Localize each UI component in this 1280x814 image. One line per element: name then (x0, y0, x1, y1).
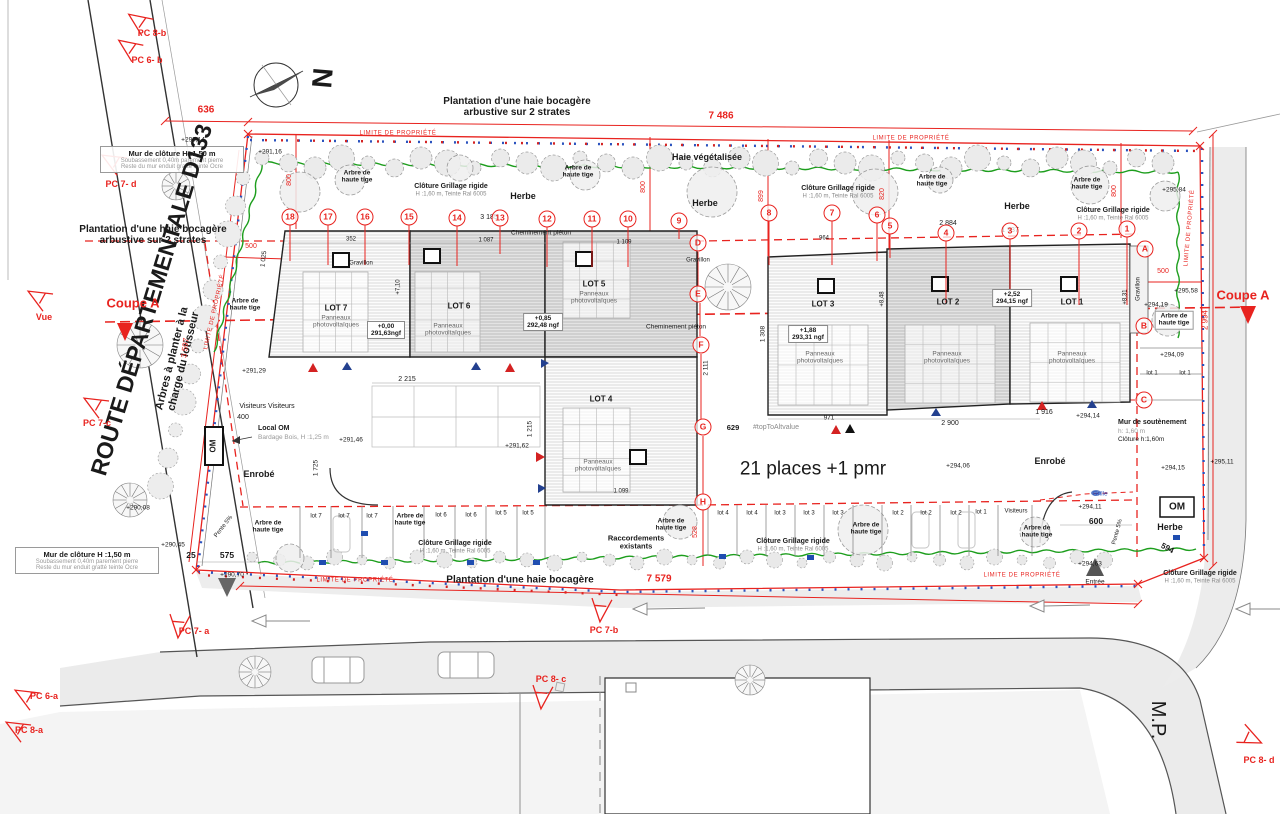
badge-2: 2 (1071, 223, 1088, 240)
badge-C: C (1136, 392, 1153, 409)
pc-8a: PC 8-a (15, 725, 43, 735)
plan-label: Herbe (1004, 201, 1030, 211)
plan-label: Enrobé (1034, 456, 1065, 466)
plan-label: H :1,60 m, Teinte Ral 6005 (803, 194, 874, 201)
plan-label: 600 (1089, 517, 1103, 527)
plan-label: Gravillon (1136, 277, 1143, 301)
section-a-left: Coupe A (107, 297, 160, 312)
plan-label: LIMITE DE PROPRIÉTÉ (872, 136, 949, 143)
plan-label: Arbre de haute tige (1072, 177, 1103, 192)
plan-label: Arbre de haute tige (656, 518, 687, 533)
badge-8: 8 (761, 205, 778, 222)
plan-label: Gravillon (349, 261, 373, 268)
plan-label: Grille (1092, 490, 1107, 497)
badge-18: 18 (282, 209, 299, 226)
pc-6b: PC 6- b (131, 55, 162, 65)
lot-6-label: LOT 6 (448, 302, 471, 311)
om-box-west: OM (210, 440, 219, 453)
plan-label: lot 1 (1179, 371, 1190, 378)
plan-label: Arbre de haute tige (253, 520, 284, 535)
badge-B: B (1136, 318, 1153, 335)
plan-label: lot 3 (803, 511, 814, 518)
plan-label: Arbre de haute tige (1022, 525, 1053, 540)
badge-14: 14 (449, 210, 466, 227)
badge-H: H (695, 494, 712, 511)
plantation-note-top: Plantation d'une haie bocagère arbustive… (443, 96, 590, 118)
plan-label: 1 109 (616, 240, 631, 247)
lot-2-label: LOT 2 (937, 298, 960, 307)
plan-label: +7,10 (396, 279, 403, 294)
plan-label: LIMITE DE PROPRIÉTÉ (359, 131, 436, 138)
plan-label: lot 5 (495, 511, 506, 518)
plantation-note-south: Plantation d'une haie bocagère (446, 574, 593, 585)
retaining-wall-note: Mur de soutènement h: 1,60 m Clôture h:1… (1118, 419, 1186, 444)
parking-count: 21 places +1 pmr (740, 458, 886, 479)
badge-15: 15 (401, 209, 418, 226)
plan-label: Gravillon (686, 258, 710, 265)
lot-1-label: LOT 1 (1061, 298, 1084, 307)
plan-label: Arbre de haute tige (851, 522, 882, 537)
lot-5-label: LOT 5 (583, 280, 606, 289)
plan-label: +294,11 (1078, 503, 1101, 510)
plan-label: +294,15 (1161, 464, 1185, 471)
badge-E: E (690, 286, 707, 303)
badge-F: F (693, 337, 710, 354)
badge-13: 13 (492, 210, 509, 227)
badge-17: 17 (320, 209, 337, 226)
plan-label: 971 (824, 414, 835, 421)
pc-8c: PC 8- c (536, 674, 567, 684)
plan-label: 7 486 (708, 110, 733, 121)
plan-label: 1 916 (1035, 409, 1053, 417)
badge-A: A (1137, 241, 1154, 258)
plan-label: +294,19 (1144, 301, 1168, 308)
plan-label: H :1,60 m, Teinte Ral 6005 (758, 547, 829, 554)
plan-label: LIMITE DE PROPRIÉTÉ (983, 573, 1060, 580)
plan-label: lot 1 (975, 510, 986, 517)
om-box-east: OM (1169, 501, 1185, 512)
plan-label: 800 (1111, 185, 1119, 197)
plan-label: 7 579 (646, 573, 671, 584)
plan-label: +294,09 (1160, 351, 1184, 358)
level-box-lot3: +1,88293,31 ngf (788, 325, 828, 343)
plan-label: lot 3 (774, 511, 785, 518)
plan-label: Arbre de haute tige (1155, 311, 1194, 330)
entrance-label: Entrée (1085, 578, 1104, 585)
badge-4: 4 (938, 225, 955, 242)
plan-label: Cheminement piéton (646, 323, 706, 330)
plan-label: Clôture Grillage rigide (801, 185, 875, 193)
plan-label: H :1,60 m, Teinte Ral 6005 (1165, 579, 1236, 586)
plan-label: 528 (692, 526, 700, 538)
plan-label: lot 6 (435, 513, 446, 520)
plan-label: LIMITE DE PROPRIÉTÉ (316, 578, 393, 585)
plan-label: lot 1 (1146, 371, 1157, 378)
plan-label: 1 308 (759, 326, 766, 342)
level-box-lot56: +0,85292,48 ngf (523, 313, 563, 331)
plan-label: 1 087 (478, 238, 493, 245)
badge-G: G (695, 419, 712, 436)
plan-label: 1 099 (613, 489, 628, 496)
plan-label: +294,06 (946, 462, 970, 469)
plan-label: Cheminement piéton (511, 229, 571, 236)
plan-label: 820 (879, 188, 887, 200)
pc-7a: PC 7- a (179, 626, 210, 636)
plan-label: +290,14 (181, 136, 205, 143)
lot-3-label: LOT 3 (812, 300, 835, 309)
plan-label: lot 2 (950, 511, 961, 518)
mp-road-label: M.P. (1147, 701, 1169, 740)
plan-label: lot 7 (366, 514, 377, 521)
plan-label: 964 (819, 236, 829, 243)
badge-16: 16 (357, 209, 374, 226)
plan-label: lot 3 (832, 511, 843, 518)
pc-7d: PC 7- d (105, 179, 136, 189)
plan-label: 575 (220, 551, 234, 561)
plan-label: 500 (1157, 268, 1169, 276)
plan-label: +295,58 (1174, 287, 1198, 294)
local-om-note: Local OM Bardage Bois, H :1,25 m (258, 425, 329, 442)
plan-label: Clôture Grillage rigide (756, 538, 830, 546)
wall-note-title: Mur de clôture H :1,50 m (105, 149, 239, 158)
plantation-note-west: Plantation d'une haie bocagère arbustive… (79, 224, 226, 246)
plan-label: 629 (727, 424, 740, 432)
plan-label: 25 (186, 551, 195, 561)
level-box-lot7: +0,00291,63ngf (367, 321, 405, 339)
plan-label: Arbre de haute tige (230, 298, 261, 313)
badge-D: D (690, 235, 707, 252)
pc-8b: PC 8-b (138, 28, 167, 38)
plan-label: +290,70 (220, 571, 244, 578)
plan-label: lot 7 (310, 514, 321, 521)
plan-label: Clôture Grillage rigide (414, 183, 488, 191)
plan-label: lot 7 (338, 514, 349, 521)
lot-7-label: LOT 7 (325, 304, 348, 313)
pc-7b: PC 7-b (590, 625, 619, 635)
plan-label: 400 (237, 414, 249, 422)
plan-label: lot 6 (465, 513, 476, 520)
plan-label: lot 4 (717, 511, 728, 518)
plan-label: 800 (640, 181, 648, 193)
badge-1: 1 (1119, 221, 1136, 238)
plan-label: 636 (198, 104, 215, 115)
plan-label: Arbre de haute tige (342, 170, 373, 185)
plan-label: Clôture Grillage rigide (1163, 570, 1237, 578)
plan-label: Visiteurs Visiteurs (239, 403, 294, 411)
badge-7: 7 (824, 205, 841, 222)
plan-label: #topToAltvalue (753, 424, 799, 432)
lot-4-label: LOT 4 (590, 395, 613, 404)
plan-label: +291,16 (258, 148, 282, 155)
pc-7c: PC 7-c (83, 418, 111, 428)
plan-label: +291,29 (242, 367, 266, 374)
north-compass (250, 63, 303, 107)
plan-label: lot 5 (522, 511, 533, 518)
plan-label: 800 (286, 174, 294, 186)
plan-label: 1 725 (312, 460, 319, 476)
plan-label: +290,45 (161, 541, 185, 548)
plan-label: 2 994 (1202, 310, 1211, 330)
plan-label: H :1,60 m, Teinte Ral 6005 (420, 549, 491, 556)
plan-label: +291,62 (505, 442, 529, 449)
hedge-label: Haie végétalisée (672, 152, 742, 162)
plan-label: 2 215 (398, 376, 416, 384)
badge-10: 10 (620, 211, 637, 228)
badge-3: 3 (1002, 223, 1019, 240)
plan-label: 2 900 (941, 420, 959, 428)
plan-label: +295,11 (1210, 458, 1233, 465)
plan-label: Clôture Grillage rigide (1076, 207, 1150, 215)
plan-label: 2 111 (702, 360, 709, 375)
vue-marker-label: Vue (36, 312, 52, 322)
plan-label: H :1,60 m, Teinte Ral 6005 (1078, 216, 1149, 223)
plan-label: +8,48 (880, 291, 887, 306)
wall-note-bottom: Mur de clôture H :1,50 m Soubassement 0,… (15, 547, 159, 574)
north-letter: N (305, 67, 338, 90)
plan-label: +8,31 (1123, 289, 1130, 304)
badge-12: 12 (539, 211, 556, 228)
plan-label: Enrobé (243, 469, 274, 479)
plan-label: lot 4 (746, 511, 757, 518)
plan-label: +294,14 (1076, 412, 1100, 419)
pc-8d: PC 8- d (1243, 755, 1274, 765)
plan-label: Raccordements existants (608, 535, 664, 552)
wall-note-top: Mur de clôture H :1,50 m Soubassement 0,… (100, 146, 244, 173)
plan-label: Herbe (692, 198, 718, 208)
section-a-right: Coupe A (1217, 289, 1270, 304)
plan-label: Arbre de haute tige (395, 513, 426, 528)
pc-6a: PC 6-a (30, 691, 58, 701)
plan-label: Herbe (510, 191, 536, 201)
badge-9: 9 (671, 213, 688, 230)
plan-label: Arbre de haute tige (917, 174, 948, 189)
plan-label: 500 (245, 243, 257, 251)
site-plan: Mur de clôture H :1,50 m Soubassement 0,… (0, 0, 1280, 814)
plan-label: +290,08 (126, 504, 150, 511)
plan-label: +294,63 (1078, 560, 1102, 567)
plan-label: +295,84 (1162, 186, 1186, 193)
plan-label: 899 (758, 190, 766, 202)
plan-label: 352 (346, 237, 356, 244)
plan-label: 1 215 (526, 421, 533, 437)
plan-label: H :1,60 m, Teinte Ral 6005 (416, 192, 487, 199)
plan-label: Herbe (1157, 522, 1183, 532)
plan-label: Visiteurs (1005, 509, 1028, 516)
plan-label: Clôture Grillage rigide (418, 540, 492, 548)
plan-label: lot 2 (920, 511, 931, 518)
plan-label: Arbre de haute tige (563, 165, 594, 180)
badge-5: 5 (882, 218, 899, 235)
plan-label: +291,46 (339, 436, 363, 443)
plan-label: lot 2 (892, 511, 903, 518)
level-box-lot12: +2,52294,15 ngf (992, 289, 1032, 307)
badge-11: 11 (584, 211, 601, 228)
